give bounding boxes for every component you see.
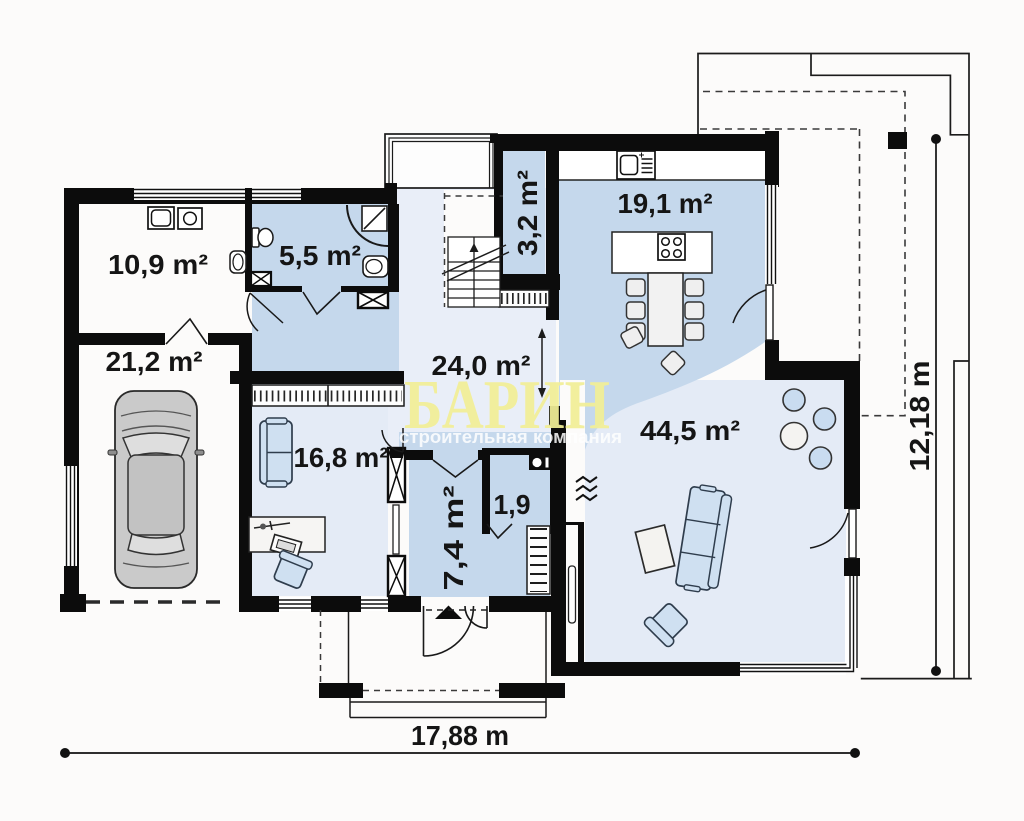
svg-text:19,1 m²: 19,1 m² (618, 188, 713, 219)
svg-text:12,18 m: 12,18 m (904, 361, 935, 472)
svg-text:3,2 m²: 3,2 m² (512, 170, 543, 256)
svg-text:10,9 m²: 10,9 m² (108, 249, 208, 280)
svg-text:21,2 m²: 21,2 m² (106, 346, 203, 377)
svg-text:строительная компания: строительная компания (399, 427, 622, 447)
svg-text:5,5 m²: 5,5 m² (279, 240, 361, 271)
svg-text:44,5 m²: 44,5 m² (640, 415, 740, 446)
svg-text:16,8 m²: 16,8 m² (294, 442, 389, 473)
svg-text:17,88 m: 17,88 m (411, 720, 509, 751)
svg-text:1,9: 1,9 (494, 489, 531, 520)
svg-text:7,4 m²: 7,4 m² (438, 486, 469, 591)
